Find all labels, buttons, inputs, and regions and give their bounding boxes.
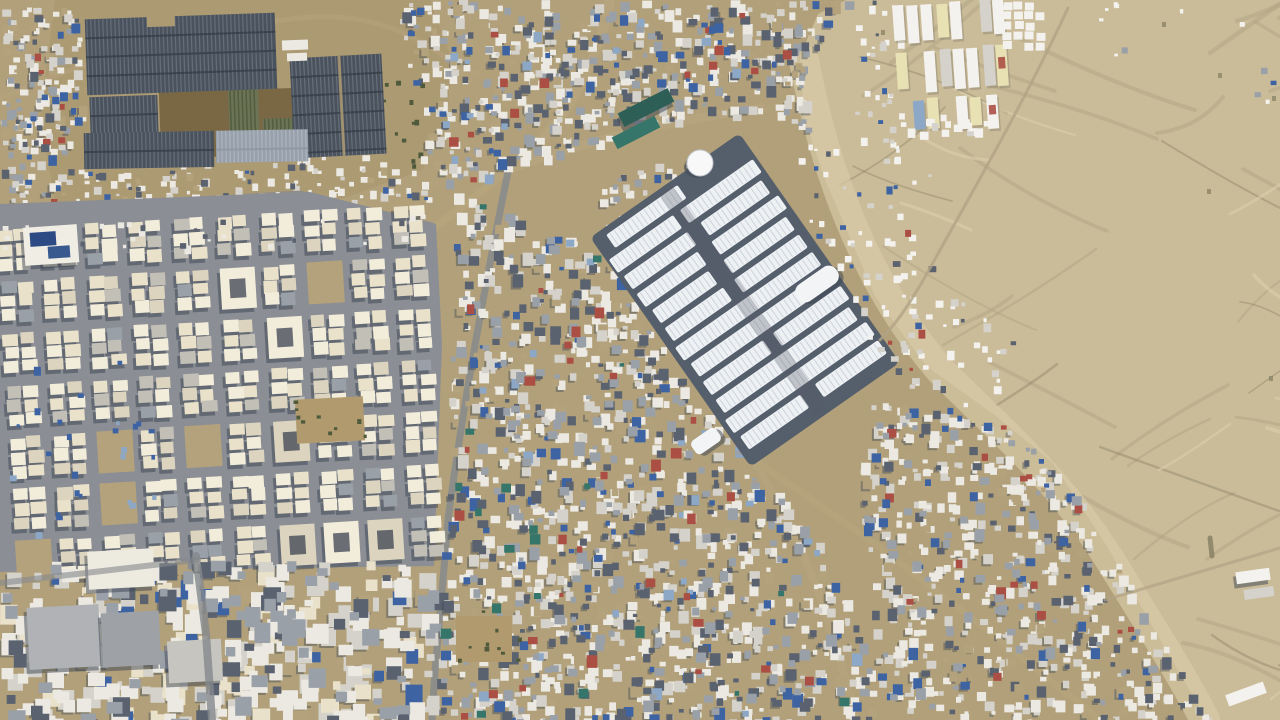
greenhouse-block-4 <box>84 131 215 169</box>
satellite-photo <box>0 0 1280 720</box>
greenhouse-block-4b <box>216 129 309 163</box>
camp-dirt-lot <box>456 616 512 662</box>
city-dirt-lot <box>295 396 365 443</box>
blue-roof-building <box>20 224 79 270</box>
satellite-canvas <box>0 0 1280 720</box>
greenhouse-block-1 <box>85 10 278 96</box>
satellite-photo-stage <box>0 0 1280 720</box>
